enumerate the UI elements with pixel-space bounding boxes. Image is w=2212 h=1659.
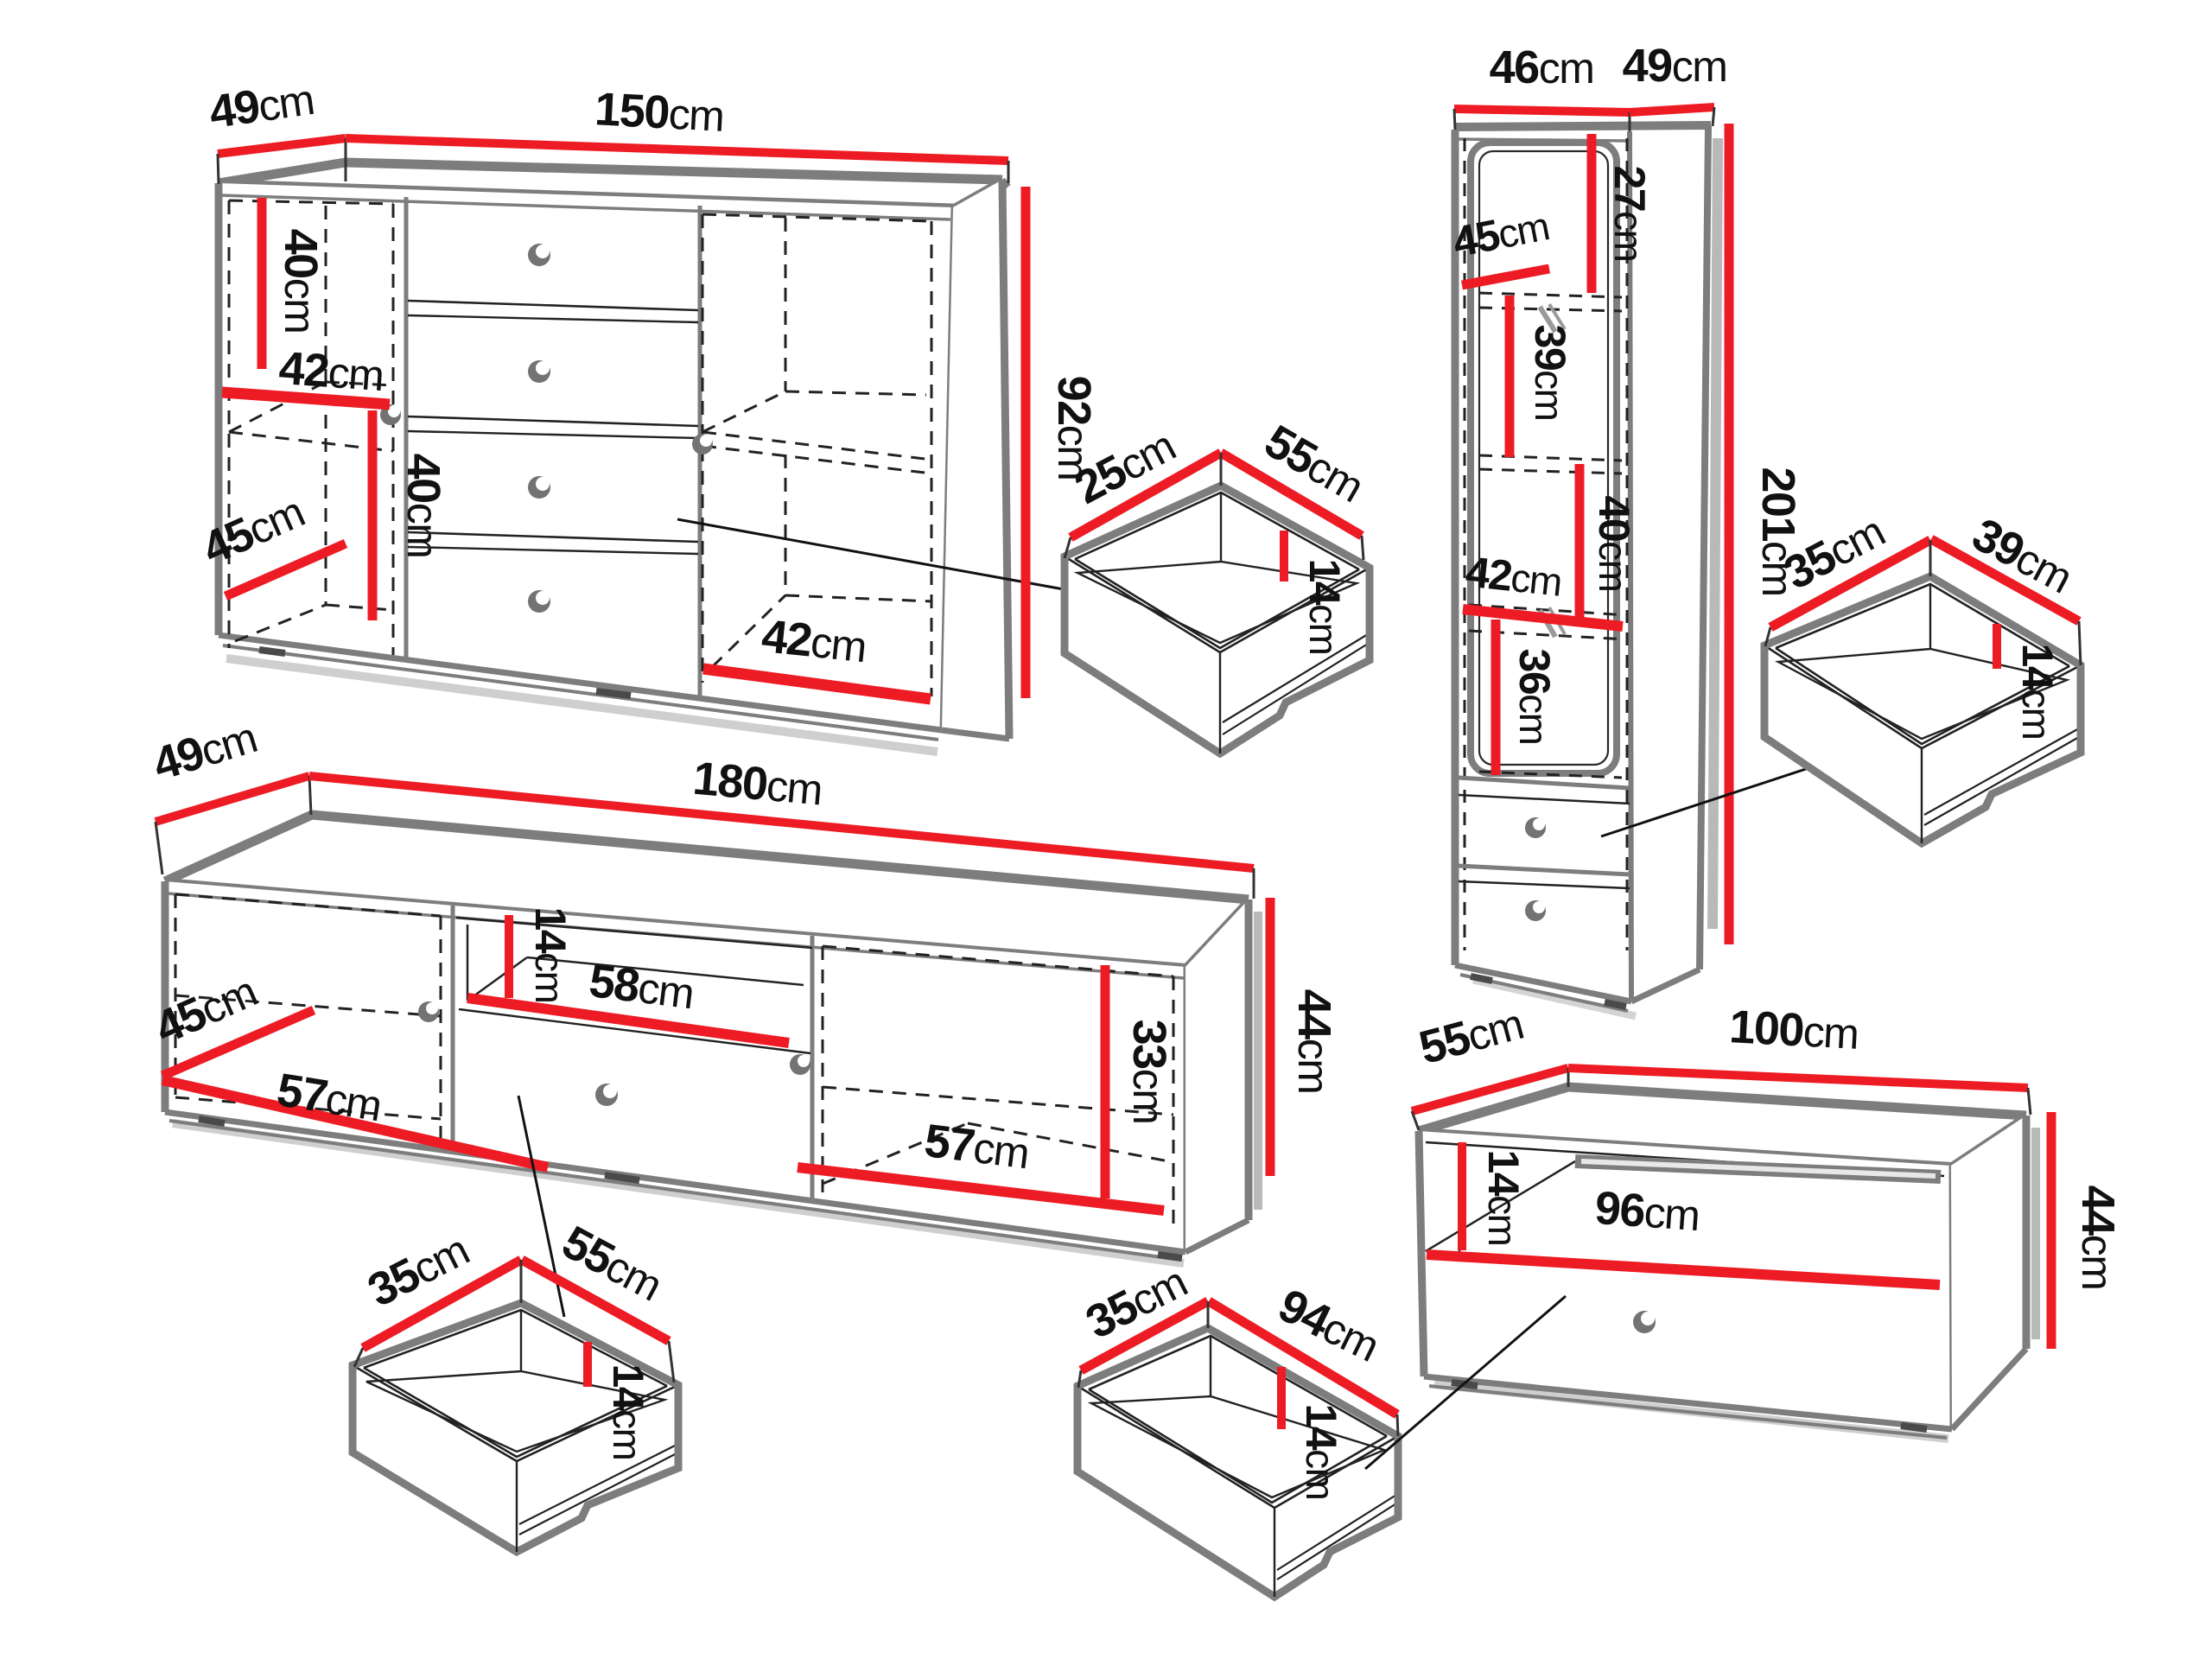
svg-text:46cm: 46cm	[1490, 41, 1594, 93]
svg-text:39cm: 39cm	[1526, 325, 1574, 421]
svg-text:14cm: 14cm	[1479, 1150, 1528, 1246]
svg-text:33cm: 33cm	[1123, 1020, 1175, 1124]
svg-text:40cm: 40cm	[1590, 496, 1638, 592]
svg-text:14cm: 14cm	[1297, 1404, 1345, 1500]
svg-text:40cm: 40cm	[397, 454, 449, 558]
svg-text:14cm: 14cm	[604, 1364, 652, 1460]
svg-text:150cm: 150cm	[594, 83, 725, 142]
svg-text:14cm: 14cm	[1300, 559, 1349, 655]
svg-text:96cm: 96cm	[1593, 1182, 1701, 1241]
svg-text:14cm: 14cm	[526, 907, 575, 1003]
svg-text:14cm: 14cm	[2013, 644, 2062, 740]
svg-text:49cm: 49cm	[1623, 40, 1727, 92]
svg-text:100cm: 100cm	[1728, 1001, 1859, 1059]
svg-text:44cm: 44cm	[1288, 989, 1340, 1094]
svg-text:36cm: 36cm	[1510, 649, 1559, 745]
svg-text:27cm: 27cm	[1605, 166, 1654, 262]
svg-text:44cm: 44cm	[2072, 1185, 2124, 1290]
svg-text:40cm: 40cm	[275, 229, 327, 334]
svg-text:42cm: 42cm	[277, 342, 385, 401]
